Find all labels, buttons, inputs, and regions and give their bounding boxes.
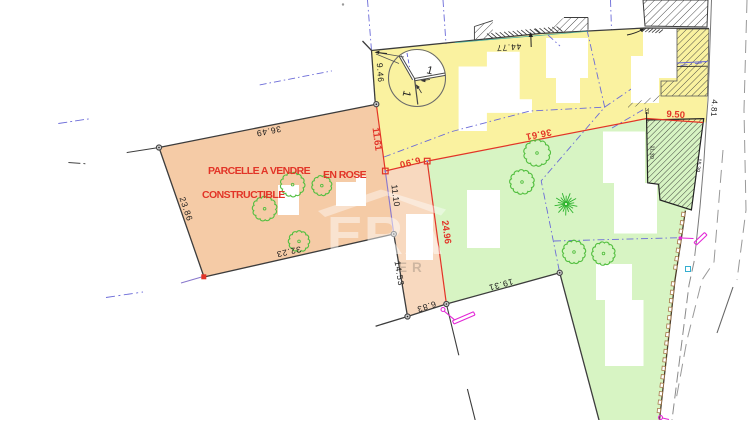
svg-text:9.46: 9.46 bbox=[375, 63, 386, 83]
svg-text:EN ROSE: EN ROSE bbox=[323, 169, 367, 181]
svg-text:33: 33 bbox=[643, 108, 649, 114]
svg-text:11.30: 11.30 bbox=[648, 145, 655, 159]
svg-text:PARCELLE A VENDRE: PARCELLE A VENDRE bbox=[208, 165, 311, 177]
svg-text:CONSTRUCTIBLE: CONSTRUCTIBLE bbox=[202, 189, 285, 201]
svg-text:9.50: 9.50 bbox=[666, 109, 685, 121]
svg-text:ERA: ERA bbox=[327, 206, 444, 266]
svg-text:44.77: 44.77 bbox=[496, 42, 522, 54]
svg-text:4.81: 4.81 bbox=[709, 99, 719, 117]
